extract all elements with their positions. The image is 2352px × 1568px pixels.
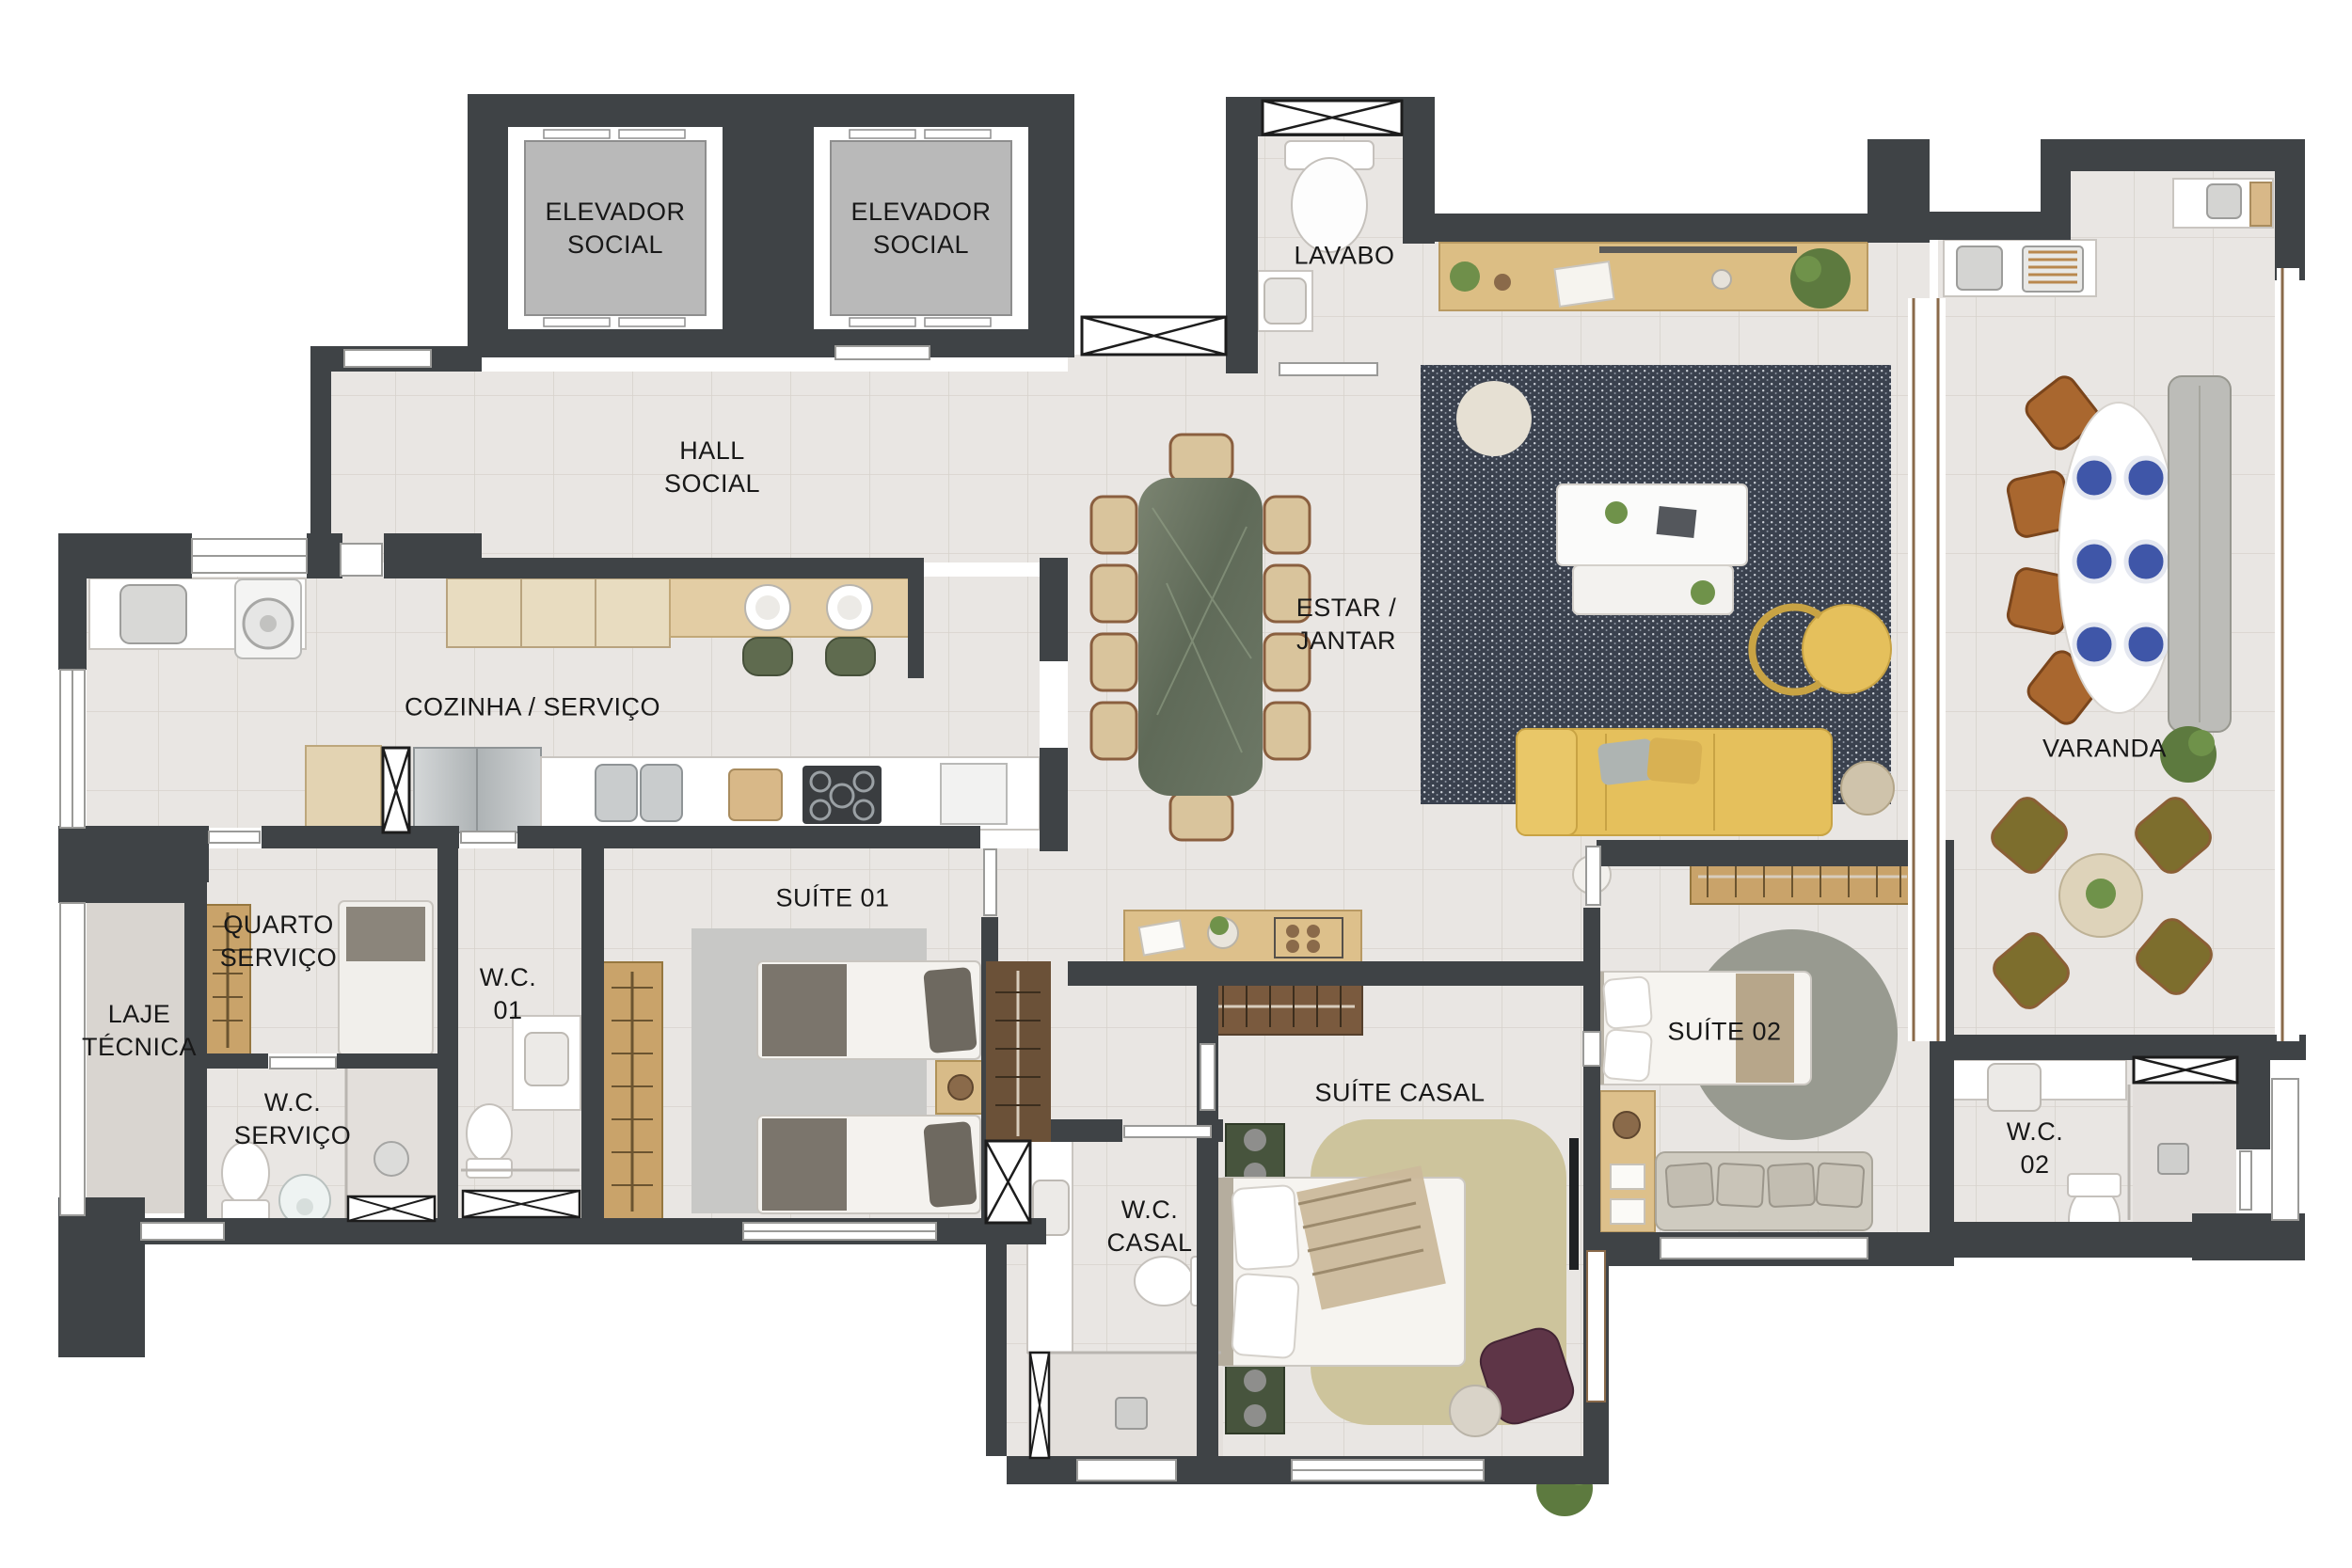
room-label-suite-casal: SUÍTE CASAL [1314, 1076, 1485, 1109]
side-table [1841, 762, 1894, 815]
room-label-suite-01: SUÍTE 01 [775, 881, 889, 914]
room-label-wc-servico: W.C. SERVIÇO [234, 1086, 352, 1152]
exterior-patch [1930, 139, 2041, 212]
room-label-elevator-1: ELEVADOR SOCIAL [545, 196, 685, 261]
kitchen-upper-cabinets [447, 578, 670, 647]
sofa [1517, 729, 1832, 835]
coffee-tables [1557, 484, 1747, 614]
media-sideboard [1439, 243, 1867, 310]
room-label-estar-jantar: ESTAR / JANTAR [1296, 592, 1397, 657]
room-label-hall-social: HALL SOCIAL [664, 435, 760, 500]
room-label-wc-02: W.C. 02 [2007, 1116, 2064, 1181]
floor-plan: ELEVADOR SOCIAL ELEVADOR SOCIAL LAVABO H… [0, 0, 2352, 1568]
laundry-area [89, 578, 306, 658]
kitchen-counter [306, 746, 1040, 832]
room-label-elevator-2: ELEVADOR SOCIAL [850, 196, 991, 261]
room-label-quarto-servico: QUARTO SERVIÇO [220, 909, 338, 974]
room-label-lavabo: LAVABO [1294, 239, 1394, 272]
room-label-laje-tecnica: LAJE TÉCNICA [82, 998, 197, 1064]
room-label-wc-01: W.C. 01 [480, 961, 537, 1027]
hall-console [1124, 911, 1361, 964]
floor-plan-drawing [0, 0, 2352, 1568]
room-label-varanda: VARANDA [2042, 732, 2167, 765]
room-label-suite-02: SUÍTE 02 [1667, 1015, 1781, 1048]
room-label-cozinha-servico: COZINHA / SERVIÇO [405, 690, 660, 723]
room-label-wc-casal: W.C. CASAL [1106, 1194, 1192, 1259]
